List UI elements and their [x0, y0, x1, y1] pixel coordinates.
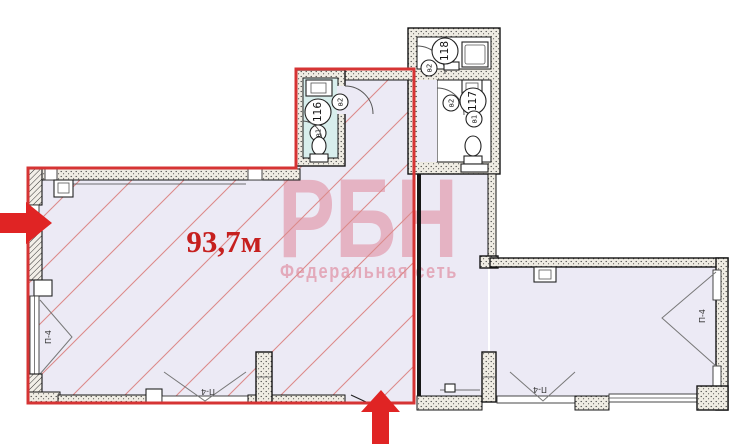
left-wall-seg-3	[28, 374, 42, 394]
basin1-label-117: в1	[471, 115, 479, 124]
wall-fixture-box	[534, 267, 556, 282]
bottom-wall-segment	[575, 396, 609, 410]
bottom-corner-block	[697, 386, 728, 410]
toilet-116-tank	[310, 154, 328, 162]
floorplan-drawing: РБН Федеральная сеть 118 в2 117 в2 в1	[0, 0, 750, 444]
sink-116	[306, 80, 332, 96]
top-wall-joint-2	[248, 169, 262, 180]
bath-vestibule-floor	[417, 80, 437, 162]
basin2-label-118: в2	[426, 64, 434, 73]
toilet-117	[465, 136, 481, 156]
shower-tray	[462, 42, 488, 67]
basin2-label-116: в2	[337, 98, 345, 107]
left-wall-seg-1	[28, 169, 42, 205]
right-window-sill-top	[713, 270, 721, 300]
bottom-window-label-main: П-4	[201, 387, 215, 396]
bottom-wall-box	[146, 389, 162, 403]
corridor-left-wall	[417, 174, 421, 402]
basin2-label-117: в2	[448, 99, 456, 108]
neighbor-room-top-wall	[490, 258, 728, 267]
right-window-label: П-4	[698, 309, 707, 323]
area-label: 93,7м	[186, 224, 261, 259]
left-bottom-corner	[28, 392, 60, 403]
left-wall-column	[34, 280, 52, 296]
neighbor-room-floor	[490, 266, 718, 398]
bottom-window-label-neighbor: П-4	[533, 385, 547, 394]
electrical-box	[54, 180, 73, 197]
floorplan-page: РБН Федеральная сеть 118 в2 117 в2 в1	[0, 0, 750, 444]
toilet-116	[312, 137, 326, 155]
toilet-117-tank	[464, 156, 482, 164]
room-118-number: 118	[439, 41, 451, 61]
bottom-window-sill-neighbor	[497, 396, 575, 403]
top-wall-joint-1	[45, 169, 57, 180]
left-window-label: П-4	[44, 330, 53, 344]
corridor-door-stub	[445, 384, 455, 392]
room-116-number: 116	[312, 102, 324, 122]
corridor-right-wall	[488, 174, 496, 256]
corridor-bottom-wall	[417, 396, 482, 410]
washstand-117	[461, 164, 488, 172]
bottom-column	[256, 352, 272, 403]
room-117-number: 117	[467, 91, 479, 111]
